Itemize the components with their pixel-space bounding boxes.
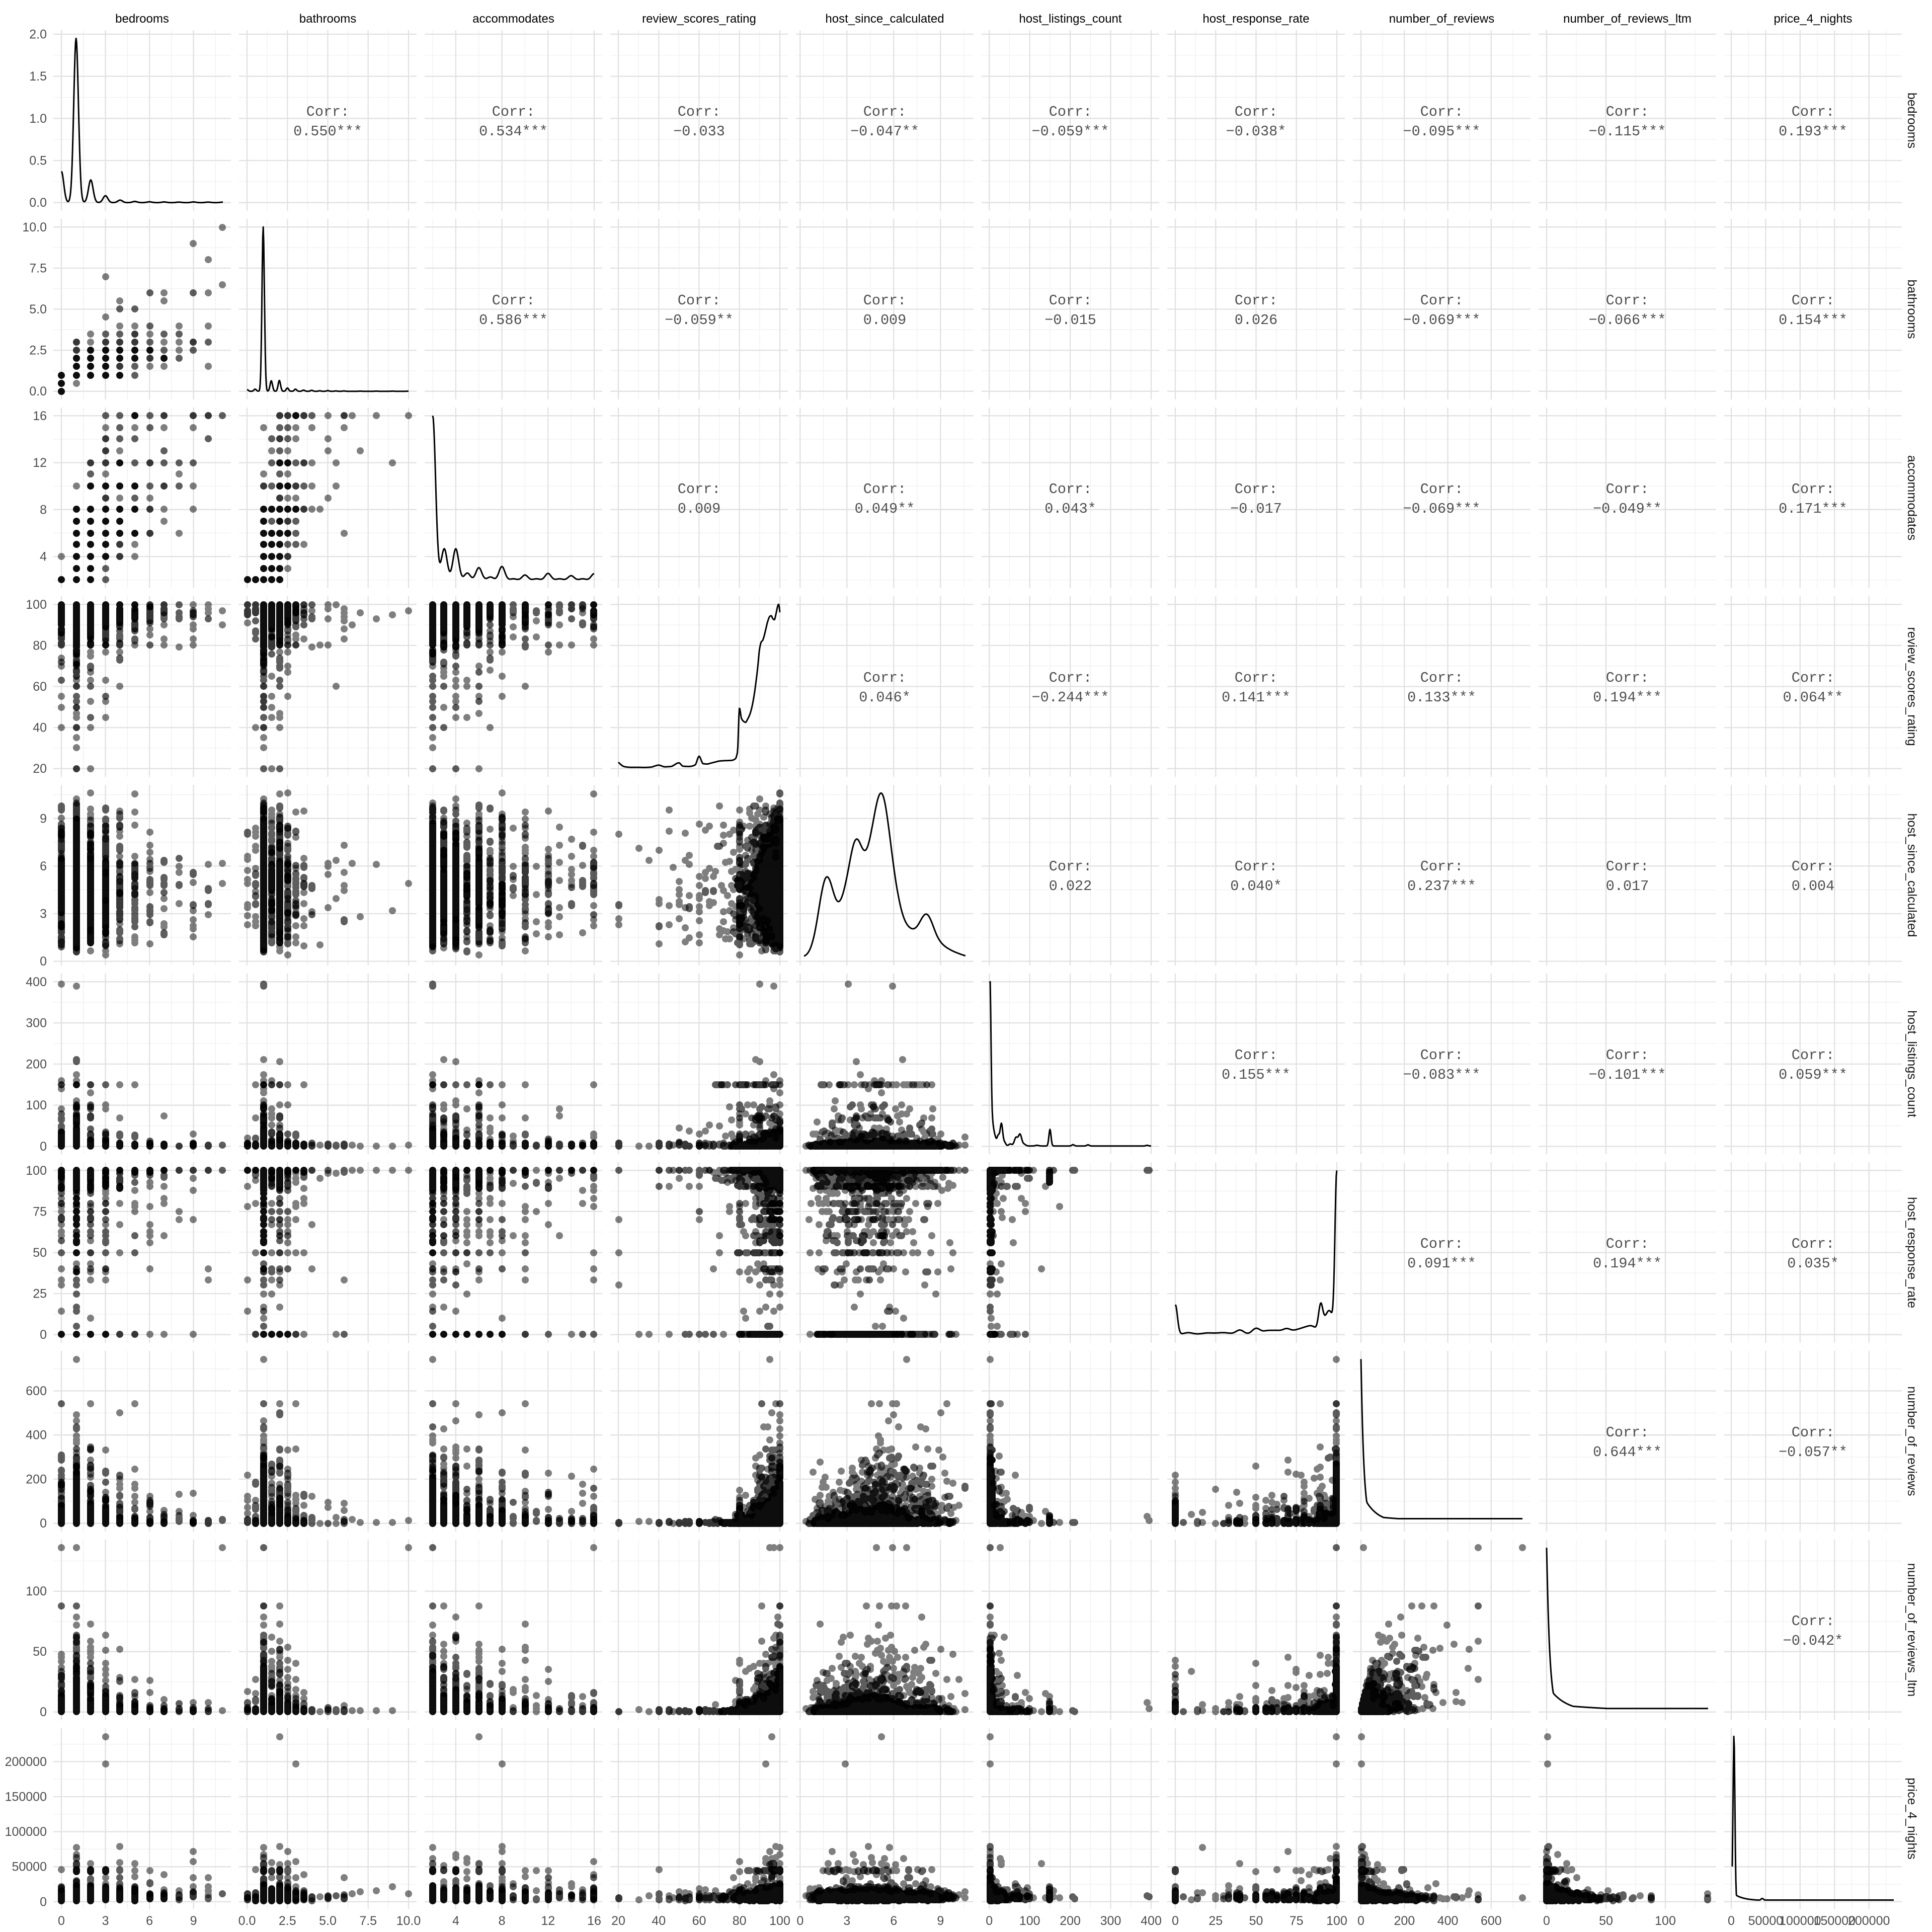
svg-text:host_response_rate: host_response_rate	[1905, 1197, 1919, 1308]
svg-text:3: 3	[102, 1914, 109, 1928]
svg-text:0.5: 0.5	[29, 154, 47, 168]
svg-text:0.040*: 0.040*	[1230, 878, 1282, 895]
svg-text:Corr:: Corr:	[1420, 1047, 1464, 1064]
svg-text:0.171***: 0.171***	[1779, 501, 1847, 517]
svg-text:0.644***: 0.644***	[1593, 1444, 1662, 1461]
svg-text:0.0: 0.0	[29, 384, 47, 398]
svg-text:7.5: 7.5	[29, 261, 47, 275]
svg-text:−0.115***: −0.115***	[1589, 123, 1666, 140]
svg-text:75: 75	[1290, 1914, 1304, 1928]
svg-text:10.0: 10.0	[396, 1914, 421, 1928]
svg-text:−0.049**: −0.049**	[1593, 501, 1662, 517]
svg-text:−0.059**: −0.059**	[665, 312, 734, 329]
svg-text:6: 6	[890, 1914, 897, 1928]
svg-text:host_listings_count: host_listings_count	[1905, 1010, 1919, 1117]
svg-text:0.0: 0.0	[238, 1914, 256, 1928]
svg-text:50000: 50000	[12, 1860, 47, 1874]
svg-text:Corr:: Corr:	[678, 104, 721, 120]
svg-text:Corr:: Corr:	[1792, 1236, 1835, 1252]
svg-text:Corr:: Corr:	[1049, 292, 1092, 309]
svg-text:400: 400	[1437, 1914, 1459, 1928]
svg-text:Corr:: Corr:	[678, 481, 721, 498]
svg-text:50: 50	[1599, 1914, 1613, 1928]
svg-text:Corr:: Corr:	[1235, 481, 1278, 498]
svg-text:−0.015: −0.015	[1044, 312, 1096, 329]
svg-text:−0.042*: −0.042*	[1783, 1633, 1843, 1649]
svg-text:25: 25	[33, 1287, 47, 1301]
svg-text:−0.095***: −0.095***	[1403, 123, 1481, 140]
svg-text:7.5: 7.5	[359, 1914, 377, 1928]
svg-text:−0.047**: −0.047**	[850, 123, 919, 140]
svg-text:2.0: 2.0	[29, 27, 47, 41]
svg-text:Corr:: Corr:	[1420, 104, 1464, 120]
svg-text:60: 60	[33, 680, 47, 694]
svg-text:Corr:: Corr:	[1606, 1424, 1649, 1441]
svg-text:75: 75	[33, 1204, 47, 1219]
svg-text:number_of_reviews: number_of_reviews	[1905, 1386, 1919, 1496]
svg-text:Corr:: Corr:	[863, 670, 907, 686]
svg-text:−0.017: −0.017	[1230, 501, 1282, 517]
svg-text:Corr:: Corr:	[1792, 1424, 1835, 1441]
svg-text:300: 300	[1100, 1914, 1121, 1928]
svg-text:50: 50	[33, 1645, 47, 1659]
svg-text:Corr:: Corr:	[1235, 858, 1278, 875]
svg-text:100: 100	[1655, 1914, 1676, 1928]
svg-text:0.193***: 0.193***	[1779, 123, 1847, 140]
svg-text:0.133***: 0.133***	[1407, 689, 1476, 706]
svg-text:0.026: 0.026	[1235, 312, 1278, 329]
svg-text:−0.069***: −0.069***	[1403, 312, 1481, 329]
svg-text:600: 600	[1481, 1914, 1502, 1928]
svg-text:Corr:: Corr:	[863, 292, 907, 309]
svg-text:25: 25	[1209, 1914, 1223, 1928]
svg-text:150000: 150000	[5, 1790, 47, 1804]
svg-text:Corr:: Corr:	[492, 292, 535, 309]
svg-text:0: 0	[1728, 1914, 1735, 1928]
svg-text:0.154***: 0.154***	[1779, 312, 1847, 329]
svg-text:bathrooms: bathrooms	[299, 12, 356, 26]
svg-text:−0.069***: −0.069***	[1403, 501, 1481, 517]
svg-text:−0.101***: −0.101***	[1589, 1067, 1666, 1083]
svg-text:Corr:: Corr:	[1606, 104, 1649, 120]
svg-text:9: 9	[40, 812, 47, 826]
svg-text:Corr:: Corr:	[1792, 670, 1835, 686]
svg-text:0: 0	[40, 1140, 47, 1154]
svg-text:0.194***: 0.194***	[1593, 1255, 1662, 1272]
svg-text:Corr:: Corr:	[1049, 481, 1092, 498]
svg-text:100: 100	[1326, 1914, 1347, 1928]
svg-text:review_scores_rating: review_scores_rating	[1905, 627, 1919, 746]
svg-text:0.043*: 0.043*	[1044, 501, 1096, 517]
svg-text:3: 3	[40, 907, 47, 921]
svg-text:16: 16	[33, 409, 47, 423]
svg-text:0: 0	[796, 1914, 803, 1928]
svg-text:−0.059***: −0.059***	[1032, 123, 1109, 140]
svg-text:0.586***: 0.586***	[479, 312, 548, 329]
svg-text:Corr:: Corr:	[306, 104, 350, 120]
svg-text:0.009: 0.009	[863, 312, 907, 329]
svg-text:6: 6	[146, 1914, 153, 1928]
svg-text:100: 100	[1019, 1914, 1040, 1928]
svg-text:60: 60	[692, 1914, 706, 1928]
svg-text:100000: 100000	[5, 1825, 47, 1839]
svg-text:−0.083***: −0.083***	[1403, 1067, 1481, 1083]
svg-text:host_since_calculated: host_since_calculated	[1905, 814, 1919, 937]
svg-text:price_4_nights: price_4_nights	[1774, 12, 1852, 26]
svg-text:0.004: 0.004	[1792, 878, 1835, 895]
svg-text:0.064**: 0.064**	[1783, 689, 1843, 706]
svg-text:0.237***: 0.237***	[1407, 878, 1476, 895]
svg-text:Corr:: Corr:	[1792, 1047, 1835, 1064]
svg-text:Corr:: Corr:	[1420, 481, 1464, 498]
svg-text:Corr:: Corr:	[1049, 104, 1092, 120]
svg-text:Corr:: Corr:	[863, 104, 907, 120]
svg-text:0: 0	[58, 1914, 65, 1928]
svg-text:300: 300	[26, 1016, 47, 1030]
svg-text:Corr:: Corr:	[863, 481, 907, 498]
svg-text:100: 100	[26, 1164, 47, 1178]
svg-text:200000: 200000	[1848, 1914, 1890, 1928]
svg-text:number_of_reviews: number_of_reviews	[1389, 12, 1494, 26]
svg-text:40: 40	[652, 1914, 666, 1928]
svg-text:0: 0	[986, 1914, 993, 1928]
svg-text:0.009: 0.009	[678, 501, 721, 517]
svg-text:0.550***: 0.550***	[293, 123, 362, 140]
svg-text:400: 400	[26, 1428, 47, 1442]
svg-text:100: 100	[26, 1098, 47, 1112]
svg-text:0: 0	[1172, 1914, 1179, 1928]
svg-text:200: 200	[1394, 1914, 1415, 1928]
svg-text:80: 80	[733, 1914, 747, 1928]
svg-text:Corr:: Corr:	[678, 292, 721, 309]
svg-text:Corr:: Corr:	[1606, 858, 1649, 875]
svg-text:accommodates: accommodates	[1905, 455, 1919, 541]
svg-text:20: 20	[611, 1914, 625, 1928]
svg-text:Corr:: Corr:	[1792, 292, 1835, 309]
svg-text:0.534***: 0.534***	[479, 123, 548, 140]
svg-text:0.022: 0.022	[1049, 878, 1092, 895]
svg-text:Corr:: Corr:	[1235, 104, 1278, 120]
svg-text:host_response_rate: host_response_rate	[1202, 12, 1309, 26]
svg-text:9: 9	[937, 1914, 944, 1928]
svg-text:0: 0	[40, 1895, 47, 1909]
svg-text:6: 6	[40, 859, 47, 873]
svg-text:0.049**: 0.049**	[855, 501, 915, 517]
svg-text:4: 4	[40, 550, 47, 564]
svg-text:0.141***: 0.141***	[1222, 689, 1291, 706]
svg-text:−0.033: −0.033	[673, 123, 725, 140]
svg-text:Corr:: Corr:	[1049, 858, 1092, 875]
svg-text:100: 100	[769, 1914, 790, 1928]
svg-text:1.5: 1.5	[29, 69, 47, 84]
svg-text:0: 0	[40, 1516, 47, 1531]
svg-text:Corr:: Corr:	[1792, 858, 1835, 875]
svg-text:0.046*: 0.046*	[859, 689, 911, 706]
svg-text:Corr:: Corr:	[1420, 670, 1464, 686]
svg-text:0.194***: 0.194***	[1593, 689, 1662, 706]
svg-text:5.0: 5.0	[319, 1914, 337, 1928]
svg-text:600: 600	[26, 1384, 47, 1398]
svg-text:50: 50	[33, 1246, 47, 1260]
svg-text:host_since_calculated: host_since_calculated	[825, 12, 944, 26]
svg-text:−0.244***: −0.244***	[1032, 689, 1109, 706]
svg-text:−0.038*: −0.038*	[1226, 123, 1286, 140]
svg-text:200: 200	[26, 1057, 47, 1071]
svg-text:review_scores_rating: review_scores_rating	[642, 12, 756, 26]
svg-text:Corr:: Corr:	[1235, 292, 1278, 309]
svg-text:0: 0	[1543, 1914, 1550, 1928]
svg-text:16: 16	[587, 1914, 601, 1928]
svg-text:2.5: 2.5	[279, 1914, 296, 1928]
svg-text:8: 8	[499, 1914, 506, 1928]
svg-text:Corr:: Corr:	[1792, 104, 1835, 120]
svg-text:0.059***: 0.059***	[1779, 1067, 1847, 1083]
svg-text:100: 100	[26, 598, 47, 612]
svg-text:100: 100	[26, 1584, 47, 1598]
svg-text:0.091***: 0.091***	[1407, 1255, 1476, 1272]
svg-text:40: 40	[33, 721, 47, 735]
svg-text:0.035*: 0.035*	[1787, 1255, 1839, 1272]
svg-text:bedrooms: bedrooms	[115, 12, 169, 26]
svg-text:Corr:: Corr:	[1420, 1236, 1464, 1252]
svg-text:Corr:: Corr:	[1606, 292, 1649, 309]
svg-text:Corr:: Corr:	[1049, 670, 1092, 686]
svg-text:accommodates: accommodates	[472, 12, 554, 26]
svg-text:5.0: 5.0	[29, 302, 47, 316]
svg-text:0.0: 0.0	[29, 196, 47, 210]
svg-text:number_of_reviews_ltm: number_of_reviews_ltm	[1563, 12, 1692, 26]
svg-text:Corr:: Corr:	[1792, 1613, 1835, 1630]
svg-text:−0.057**: −0.057**	[1779, 1444, 1847, 1461]
svg-text:Corr:: Corr:	[1606, 670, 1649, 686]
svg-text:0: 0	[40, 954, 47, 969]
svg-text:Corr:: Corr:	[1606, 481, 1649, 498]
svg-text:3: 3	[843, 1914, 850, 1928]
svg-text:Corr:: Corr:	[1235, 670, 1278, 686]
svg-text:bathrooms: bathrooms	[1905, 279, 1919, 339]
svg-text:400: 400	[1141, 1914, 1162, 1928]
svg-text:number_of_reviews_ltm: number_of_reviews_ltm	[1905, 1563, 1919, 1697]
svg-text:Corr:: Corr:	[1792, 481, 1835, 498]
svg-text:0: 0	[1357, 1914, 1364, 1928]
svg-text:0: 0	[40, 1328, 47, 1342]
svg-text:50000: 50000	[1748, 1914, 1784, 1928]
svg-text:80: 80	[33, 638, 47, 653]
svg-text:Corr:: Corr:	[1235, 1047, 1278, 1064]
svg-text:Corr:: Corr:	[1606, 1236, 1649, 1252]
svg-text:0.017: 0.017	[1606, 878, 1649, 895]
svg-text:host_listings_count: host_listings_count	[1019, 12, 1121, 26]
svg-text:50: 50	[1249, 1914, 1263, 1928]
svg-text:400: 400	[26, 975, 47, 989]
svg-text:Corr:: Corr:	[1420, 292, 1464, 309]
svg-text:8: 8	[40, 503, 47, 517]
svg-text:9: 9	[190, 1914, 197, 1928]
svg-text:12: 12	[541, 1914, 555, 1928]
svg-text:0: 0	[40, 1705, 47, 1719]
svg-text:0.155***: 0.155***	[1222, 1067, 1291, 1083]
svg-text:Corr:: Corr:	[1420, 858, 1464, 875]
svg-text:Corr:: Corr:	[1606, 1047, 1649, 1064]
svg-text:1.0: 1.0	[29, 112, 47, 126]
svg-text:12: 12	[33, 456, 47, 470]
svg-text:2.5: 2.5	[29, 344, 47, 358]
svg-text:10.0: 10.0	[22, 220, 47, 234]
svg-text:Corr:: Corr:	[492, 104, 535, 120]
svg-text:bedrooms: bedrooms	[1905, 93, 1919, 148]
svg-text:200000: 200000	[5, 1755, 47, 1769]
svg-text:−0.066***: −0.066***	[1589, 312, 1666, 329]
svg-text:200: 200	[1060, 1914, 1081, 1928]
svg-text:price_4_nights: price_4_nights	[1905, 1778, 1919, 1860]
svg-text:200: 200	[26, 1472, 47, 1486]
svg-text:20: 20	[33, 762, 47, 776]
svg-text:4: 4	[452, 1914, 459, 1928]
